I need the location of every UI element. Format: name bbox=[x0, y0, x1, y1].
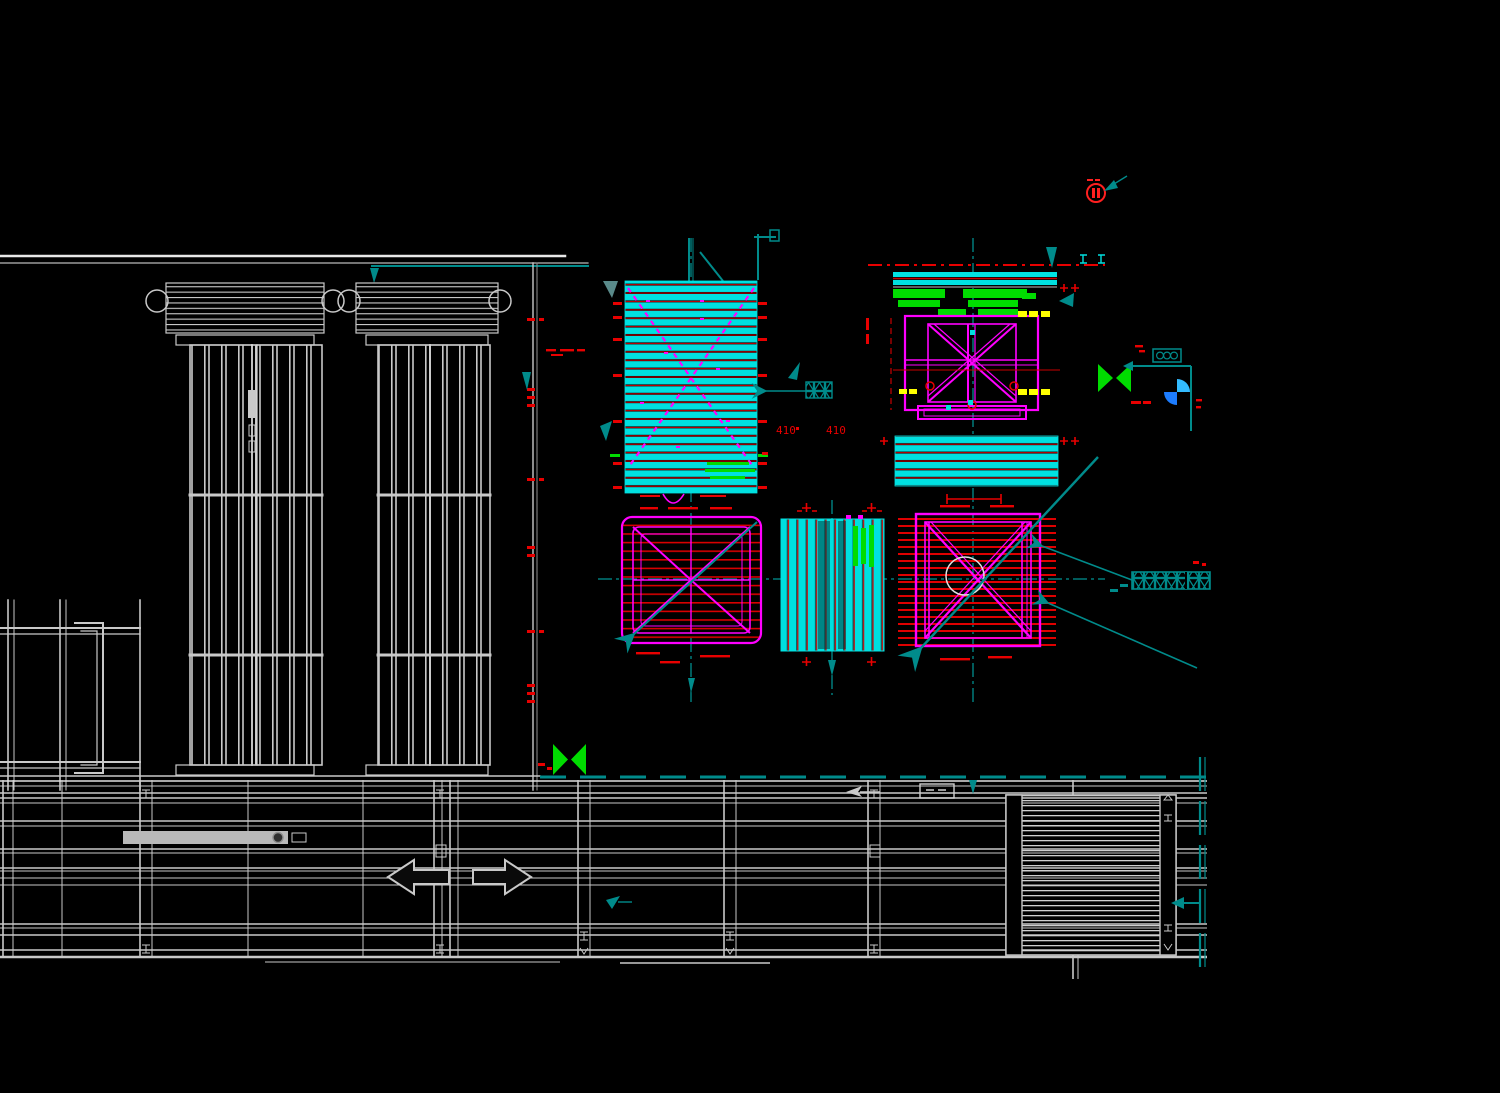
cad-drawing: 410 410 bbox=[0, 0, 1500, 1093]
dim-label-410-a: 410 bbox=[776, 424, 796, 437]
section-flag-group bbox=[1123, 345, 1202, 431]
beam-bar bbox=[123, 831, 288, 844]
green-notes bbox=[853, 525, 874, 567]
flag-box bbox=[770, 230, 779, 241]
red-dim-line bbox=[947, 494, 1001, 504]
left-steel-structure bbox=[0, 256, 588, 790]
dim-label-410-b: 410 bbox=[826, 424, 846, 437]
pad-bracing bbox=[633, 527, 750, 633]
deck-arc bbox=[663, 494, 684, 503]
wedge-arrow-icon bbox=[1059, 293, 1074, 307]
tower-b bbox=[338, 283, 511, 775]
red-circle-revision-marker bbox=[1087, 176, 1127, 202]
wedge-arrow-icon bbox=[828, 660, 836, 676]
arrow-right-icon bbox=[473, 860, 531, 894]
middle-cyan-bar bbox=[880, 436, 1079, 504]
left-dimension-marks bbox=[527, 318, 585, 770]
equipment-block-center bbox=[781, 503, 884, 676]
grating-tag-right bbox=[1042, 546, 1210, 668]
foundation-pad-right bbox=[898, 457, 1098, 660]
arrow-left-icon bbox=[388, 860, 449, 894]
wedge-arrow-icon bbox=[1104, 180, 1118, 191]
green-bowtie-marker-upper bbox=[1098, 364, 1131, 392]
upper-right-assembly bbox=[866, 247, 1105, 419]
small-arrow-icon bbox=[846, 786, 862, 797]
right-louver-block bbox=[1006, 795, 1176, 955]
wedge-arrow-icon bbox=[1046, 247, 1057, 268]
handle-detail bbox=[248, 390, 256, 418]
bottom-posts bbox=[3, 780, 1078, 979]
teal-arrow-icon bbox=[370, 268, 379, 283]
wedge-arrow-icon bbox=[600, 421, 612, 441]
dimension-labels: 410 410 bbox=[762, 424, 846, 455]
ladder-frame bbox=[0, 600, 140, 790]
wedge-arrow-icon bbox=[688, 678, 695, 693]
wedge-arrow-icon bbox=[603, 281, 618, 298]
tower-a bbox=[146, 283, 344, 775]
beam-clip bbox=[292, 833, 306, 842]
green-highlight-notes bbox=[893, 289, 1036, 315]
wedge-arrow-icon bbox=[522, 372, 531, 390]
bottom-structure bbox=[0, 757, 1207, 979]
cad-viewport[interactable]: 410 410 bbox=[0, 0, 1500, 1093]
blue-quadrant-section-marker bbox=[1164, 379, 1190, 405]
beam-hole bbox=[273, 833, 283, 843]
deck-planks bbox=[625, 281, 757, 493]
wedge-arrow-icon bbox=[788, 362, 800, 380]
grating-tag bbox=[806, 382, 832, 398]
foundation-pad-left bbox=[622, 507, 761, 663]
direction-arrows bbox=[388, 860, 531, 894]
wedge-arrow-icon bbox=[606, 896, 620, 909]
leader-line bbox=[1048, 603, 1197, 668]
green-bowtie-marker-lower bbox=[553, 744, 586, 775]
wedge-arrow-icon bbox=[969, 780, 977, 794]
